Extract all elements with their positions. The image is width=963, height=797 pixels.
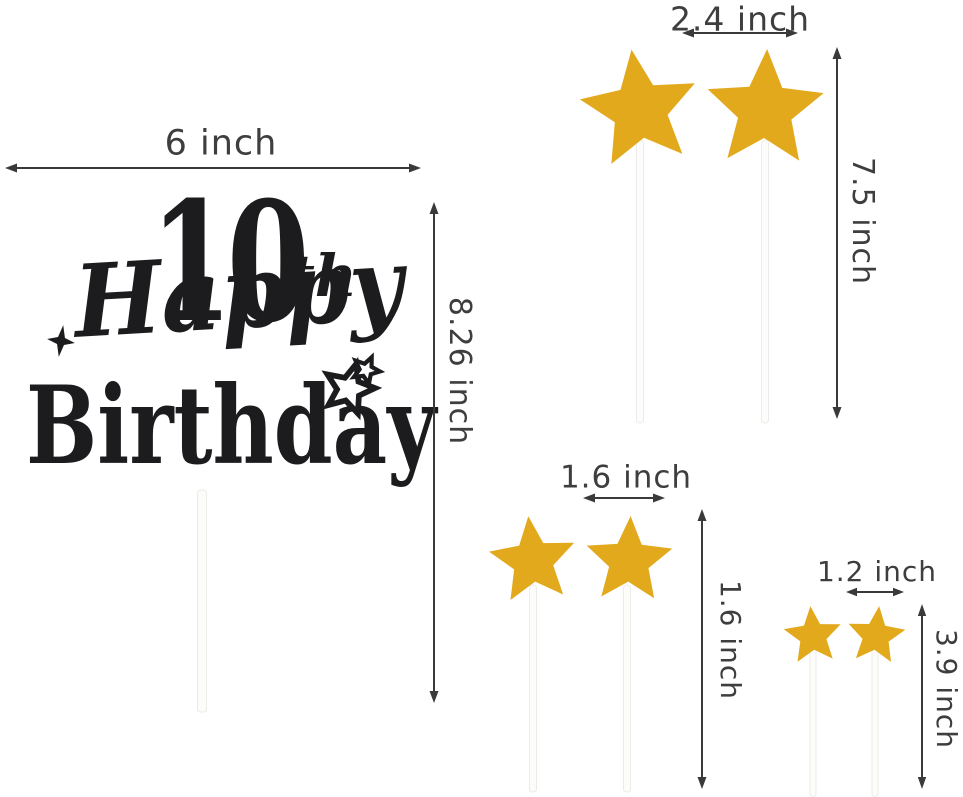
large-star-right-stick xyxy=(762,140,769,423)
medium-star-height-label: 1.6 inch xyxy=(716,580,744,700)
medium-star-right-stick xyxy=(624,585,631,792)
topper-stick xyxy=(198,490,207,712)
medium-star-height-arrow xyxy=(698,509,707,789)
large-star-height-label: 7.5 inch xyxy=(847,157,877,285)
large-star-width-label: 2.4 inch xyxy=(670,3,810,36)
small-star-width-label: 1.2 inch xyxy=(817,558,937,586)
small-star-width-arrow xyxy=(846,588,904,596)
medium-star-width-label: 1.6 inch xyxy=(560,463,692,494)
topper-sparkle-icon xyxy=(45,323,77,359)
small-star-right-stick xyxy=(872,645,878,797)
product-photo: 10 th Happy Birthday xyxy=(0,0,963,797)
large-star-left-stick xyxy=(637,140,644,423)
small-star-left-stick xyxy=(810,645,816,797)
medium-star-left-stick xyxy=(530,585,537,792)
topper-width-label: 6 inch xyxy=(165,127,278,162)
small-star-height-label: 3.9 inch xyxy=(932,629,960,749)
small-star-height-arrow xyxy=(918,604,926,789)
topper-width-arrow xyxy=(5,164,421,173)
shapes-layer xyxy=(0,0,963,797)
topper-height-label: 8.26 inch xyxy=(444,297,474,445)
large-star-height-arrow xyxy=(833,47,842,419)
topper-height-arrow xyxy=(430,202,439,703)
